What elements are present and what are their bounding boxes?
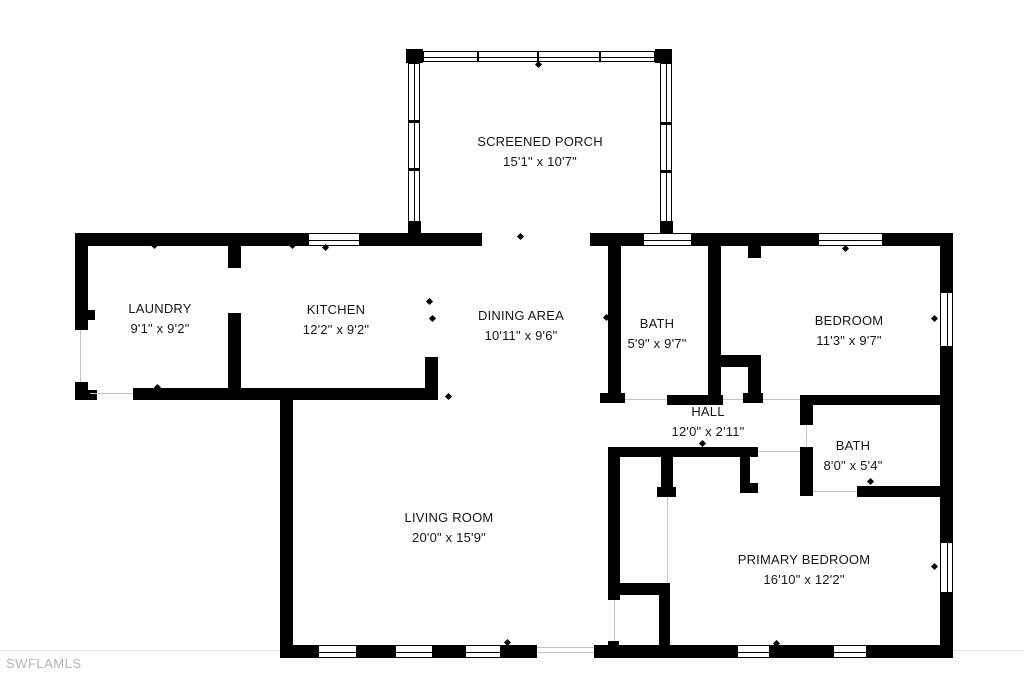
interior-wall — [600, 393, 625, 403]
exterior-wall — [501, 645, 537, 658]
window — [940, 292, 953, 347]
door-opening — [723, 399, 743, 400]
interior-wall — [857, 486, 953, 497]
porch-screen-wall-top — [423, 51, 655, 62]
room-dims: 9'1" x 9'2" — [128, 319, 191, 339]
exterior-wall — [75, 233, 308, 246]
door-opening — [806, 425, 807, 447]
screen-divider — [660, 170, 672, 173]
exterior-wall — [360, 233, 482, 246]
room-name: LAUNDRY — [128, 299, 191, 319]
room-label-living-room: LIVING ROOM 20'0" x 15'9" — [405, 508, 494, 548]
watermark: SWFLAMLS — [6, 656, 82, 671]
interior-wall — [748, 355, 761, 395]
exterior-wall — [590, 233, 643, 246]
porch-corner-wall — [655, 49, 672, 63]
interior-wall — [800, 395, 940, 405]
sliding-door — [537, 652, 594, 653]
interior-wall — [659, 583, 670, 657]
exterior-wall — [940, 347, 953, 542]
window — [643, 233, 692, 246]
room-dims: 11'3" x 9'7" — [815, 331, 884, 351]
exterior-wall — [75, 233, 88, 330]
room-label-bedroom: BEDROOM 11'3" x 9'7" — [815, 311, 884, 351]
tick-mark — [931, 315, 938, 322]
tick-mark — [426, 298, 433, 305]
tick-mark — [931, 563, 938, 570]
closet-wall — [608, 583, 663, 595]
interior-wall — [425, 357, 438, 392]
interior-wall — [228, 313, 241, 392]
porch-wall-base — [408, 221, 421, 233]
exterior-wall — [940, 233, 953, 292]
window — [308, 233, 360, 246]
sliding-door — [537, 647, 594, 648]
interior-wall — [800, 395, 813, 425]
floor-plan: SCREENED PORCH 15'1" x 10'7" LAUNDRY 9'1… — [0, 0, 1024, 682]
window — [395, 645, 433, 658]
door-opening — [614, 600, 615, 641]
room-name: BATH — [823, 436, 882, 456]
room-label-kitchen: KITCHEN 12'2" x 9'2" — [303, 300, 369, 340]
door-jamb — [88, 310, 95, 320]
closet-opening — [667, 497, 668, 583]
exterior-wall — [940, 593, 953, 658]
room-label-primary-bedroom: PRIMARY BEDROOM 16'10" x 12'2" — [738, 550, 871, 590]
room-name: BEDROOM — [815, 311, 884, 331]
screen-divider — [408, 120, 420, 123]
room-dims: 5'9" x 9'7" — [627, 334, 686, 354]
door-opening — [813, 491, 857, 492]
exterior-wall — [357, 645, 395, 658]
room-dims: 12'2" x 9'2" — [303, 320, 369, 340]
room-label-laundry: LAUNDRY 9'1" x 9'2" — [128, 299, 191, 339]
door-jamb — [740, 447, 758, 457]
interior-wall — [228, 246, 241, 268]
porch-screen-wall-right — [660, 63, 672, 223]
interior-wall — [608, 246, 621, 393]
exterior-wall — [75, 382, 88, 400]
door-opening — [80, 330, 81, 382]
door-opening — [90, 393, 133, 394]
window — [833, 645, 867, 658]
exterior-wall — [692, 233, 818, 246]
door-opening — [753, 451, 800, 452]
screen-divider — [408, 168, 420, 171]
room-name: LIVING ROOM — [405, 508, 494, 528]
tick-mark — [517, 233, 524, 240]
interior-wall — [708, 246, 721, 395]
window — [818, 233, 883, 246]
room-label-screened-porch: SCREENED PORCH 15'1" x 10'7" — [477, 132, 603, 172]
interior-wall — [608, 447, 620, 600]
tick-mark — [445, 393, 452, 400]
door-jamb — [88, 390, 97, 400]
door-opening — [625, 399, 667, 400]
porch-screen-wall-left — [408, 63, 420, 223]
room-dims: 15'1" x 10'7" — [477, 152, 603, 172]
room-dims: 8'0" x 5'4" — [823, 456, 882, 476]
room-name: BATH — [627, 314, 686, 334]
room-name: SCREENED PORCH — [477, 132, 603, 152]
room-dims: 10'11" x 9'6" — [478, 326, 564, 346]
door-jamb — [743, 393, 763, 403]
room-label-bath: BATH 5'9" x 9'7" — [627, 314, 686, 354]
window — [737, 645, 770, 658]
porch-wall-base — [660, 221, 673, 233]
window — [318, 645, 357, 658]
tick-mark — [535, 61, 542, 68]
tick-mark — [842, 245, 849, 252]
door-jamb — [740, 483, 758, 493]
room-name: PRIMARY BEDROOM — [738, 550, 871, 570]
room-name: KITCHEN — [303, 300, 369, 320]
scan-artifact — [0, 650, 280, 651]
screen-divider — [477, 51, 479, 62]
interior-wall — [800, 447, 813, 496]
tick-mark — [867, 478, 874, 485]
screen-divider — [599, 51, 601, 62]
scan-artifact — [953, 650, 1024, 651]
exterior-wall — [280, 645, 318, 658]
room-dims: 16'10" x 12'2" — [738, 570, 871, 590]
room-label-dining-area: DINING AREA 10'11" x 9'6" — [478, 306, 564, 346]
exterior-wall — [433, 645, 465, 658]
window — [940, 542, 953, 593]
room-name: HALL — [672, 402, 745, 422]
room-dims: 20'0" x 15'9" — [405, 528, 494, 548]
room-name: DINING AREA — [478, 306, 564, 326]
door-jamb — [608, 641, 619, 652]
exterior-wall — [770, 645, 833, 658]
room-dims: 12'0" x 2'11" — [672, 422, 745, 442]
room-label-bath-2: BATH 8'0" x 5'4" — [823, 436, 882, 476]
screen-divider — [660, 122, 672, 125]
window — [465, 645, 501, 658]
interior-wall — [608, 447, 753, 457]
door-opening — [763, 399, 800, 400]
porch-corner-wall — [406, 49, 423, 63]
door-jamb — [657, 487, 676, 497]
interior-wall — [748, 246, 761, 258]
room-label-hall: HALL 12'0" x 2'11" — [672, 402, 745, 442]
tick-mark — [429, 315, 436, 322]
